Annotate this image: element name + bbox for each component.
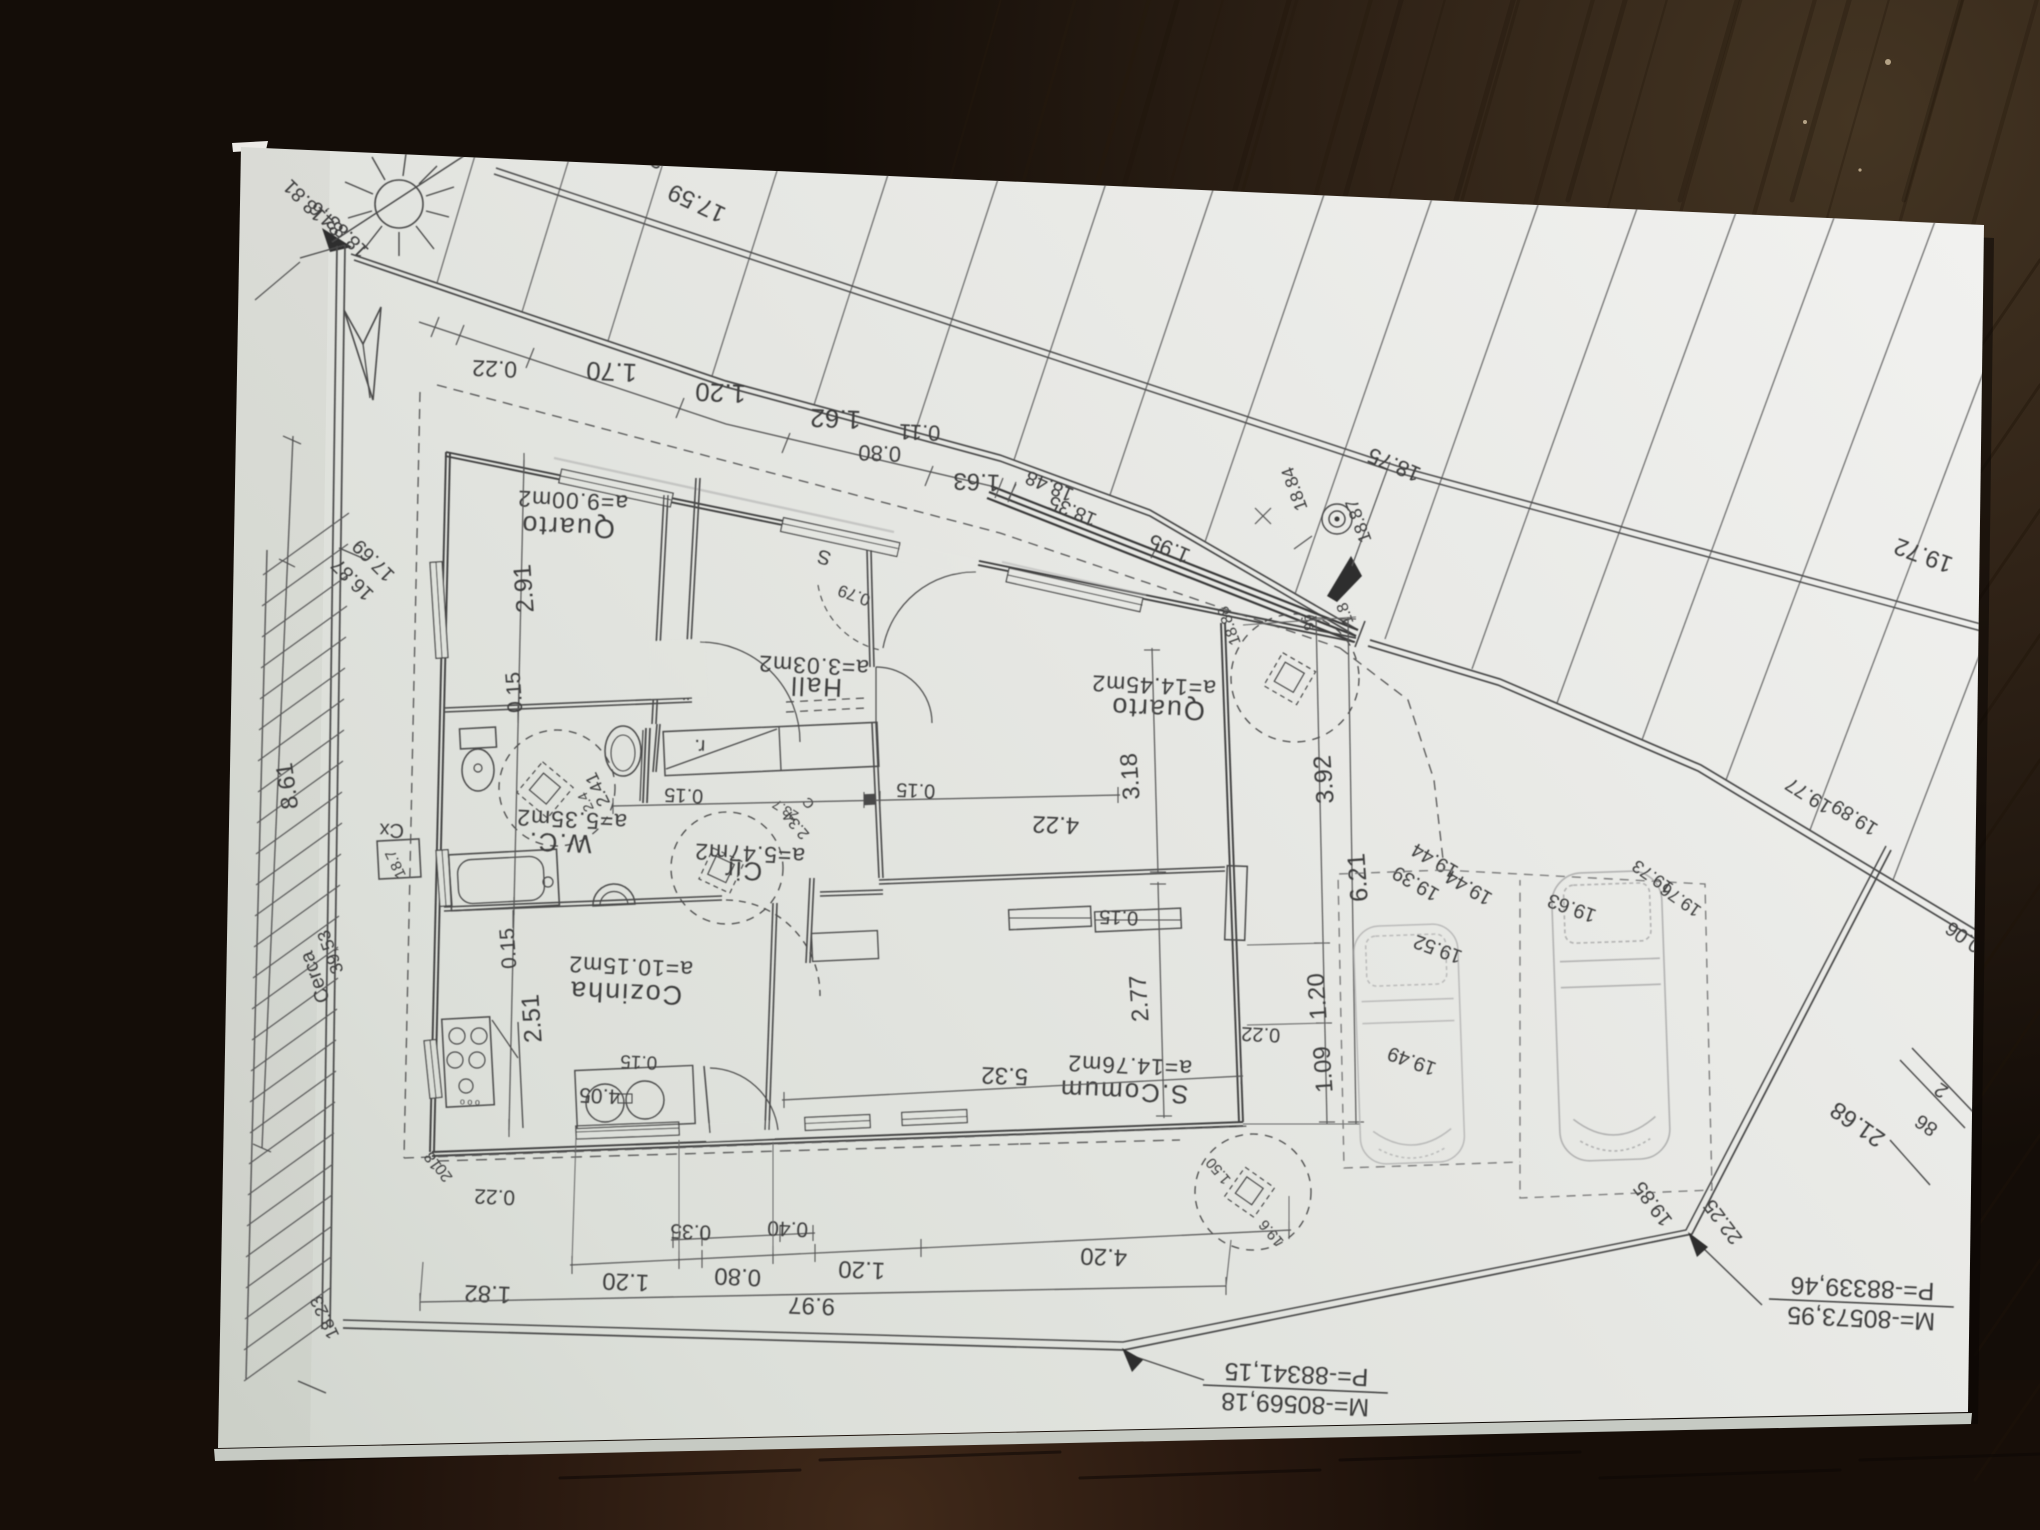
svg-text:o o o: o o o	[460, 1098, 480, 1109]
svg-text:a=14.76m2: a=14.76m2	[1067, 1050, 1193, 1081]
svg-text:2.51: 2.51	[516, 993, 547, 1044]
svg-text:4.22: 4.22	[1032, 810, 1080, 839]
svg-text:0.22: 0.22	[472, 355, 518, 383]
svg-text:2.77: 2.77	[1124, 974, 1154, 1022]
svg-text:r.: r.	[694, 735, 706, 757]
svg-text:5.32: 5.32	[981, 1061, 1029, 1090]
svg-text:Cx: Cx	[379, 819, 404, 842]
svg-text:a=5.35m2: a=5.35m2	[516, 805, 628, 836]
svg-text:2.91: 2.91	[508, 563, 539, 614]
svg-text:4.20: 4.20	[1080, 1242, 1128, 1271]
svg-text:a=5.47m2: a=5.47m2	[694, 839, 806, 870]
svg-text:a=3.03m2: a=3.03m2	[758, 651, 870, 682]
svg-text:0.35: 0.35	[670, 1219, 712, 1244]
svg-text:1.20: 1.20	[1302, 972, 1332, 1020]
svg-text:0.15: 0.15	[1099, 905, 1139, 929]
svg-text:0.80: 0.80	[714, 1262, 762, 1291]
svg-text:0.15: 0.15	[896, 778, 936, 802]
svg-text:9.97: 9.97	[788, 1291, 836, 1320]
svg-text:1.09: 1.09	[1308, 1045, 1338, 1093]
svg-text:0.15: 0.15	[620, 1050, 658, 1073]
svg-text:1.20: 1.20	[838, 1255, 886, 1284]
svg-text:1.20: 1.20	[695, 377, 747, 409]
svg-text:1.20: 1.20	[602, 1267, 650, 1296]
svg-text:a=9.00m2: a=9.00m2	[517, 486, 629, 517]
svg-text:1.62: 1.62	[810, 403, 862, 435]
svg-text:0.22: 0.22	[474, 1184, 516, 1209]
svg-text:3.18: 3.18	[1115, 752, 1145, 800]
svg-text:6.21: 6.21	[1342, 852, 1373, 903]
svg-text:4.05: 4.05	[579, 1083, 621, 1108]
svg-text:1.70: 1.70	[586, 356, 638, 388]
svg-text:1.63: 1.63	[953, 467, 1001, 496]
svg-text:0.15: 0.15	[664, 783, 704, 807]
svg-text:0.80: 0.80	[858, 440, 902, 467]
svg-text:0.15: 0.15	[502, 671, 528, 713]
svg-text:0.15: 0.15	[496, 927, 522, 969]
svg-text:3.92: 3.92	[1308, 754, 1339, 805]
svg-text:0.22: 0.22	[1241, 1022, 1281, 1046]
svg-text:1.82: 1.82	[464, 1279, 512, 1308]
svg-text:0.11: 0.11	[899, 419, 941, 446]
svg-text:a=10.15m2: a=10.15m2	[568, 951, 694, 982]
